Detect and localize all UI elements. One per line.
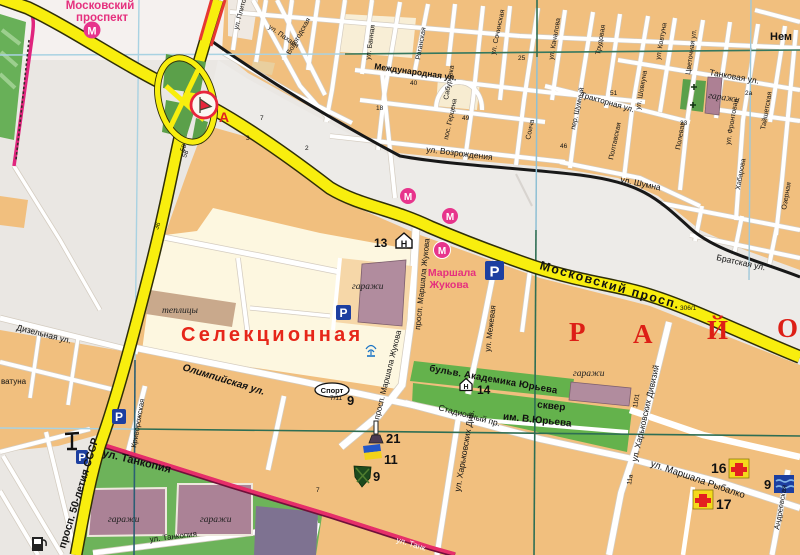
svg-text:25: 25 <box>518 55 526 62</box>
svg-text:2: 2 <box>305 145 309 152</box>
svg-text:7: 7 <box>316 487 320 494</box>
svg-text:Жукова: Жукова <box>428 279 468 291</box>
svg-text:51: 51 <box>610 90 618 97</box>
svg-text:Маршала: Маршала <box>428 267 476 279</box>
svg-text:Московский: Московский <box>66 0 135 12</box>
svg-text:46: 46 <box>560 143 568 150</box>
svg-text:Р: Р <box>569 317 586 347</box>
svg-text:Н: Н <box>463 384 468 391</box>
svg-text:16: 16 <box>711 460 727 476</box>
svg-text:М: М <box>438 246 446 257</box>
svg-text:Р: Р <box>339 306 347 320</box>
svg-text:18: 18 <box>376 105 384 112</box>
svg-text:17: 17 <box>716 496 732 512</box>
svg-text:Нем: Нем <box>770 31 792 43</box>
svg-text:гаражи: гаражи <box>352 282 384 292</box>
svg-text:проспект: проспект <box>76 12 128 24</box>
svg-text:гаражи: гаражи <box>200 515 232 525</box>
svg-text:Р: Р <box>489 264 499 281</box>
svg-text:7: 7 <box>260 115 264 122</box>
svg-text:Спорт: Спорт <box>321 386 344 395</box>
svg-text:9: 9 <box>764 477 771 492</box>
svg-text:О: О <box>777 313 798 343</box>
svg-text:Селекционная: Селекционная <box>181 324 364 346</box>
svg-text:11: 11 <box>384 452 398 467</box>
svg-text:9: 9 <box>347 393 354 408</box>
svg-text:Й: Й <box>707 315 728 345</box>
svg-text:М: М <box>404 192 412 203</box>
svg-text:теплицы: теплицы <box>162 306 198 316</box>
svg-text:40: 40 <box>410 80 418 87</box>
svg-text:гаражи: гаражи <box>108 515 140 525</box>
svg-text:7/11: 7/11 <box>330 395 343 402</box>
svg-text:2а: 2а <box>745 90 753 97</box>
svg-text:3: 3 <box>246 135 250 142</box>
svg-text:9: 9 <box>373 469 380 484</box>
svg-text:14: 14 <box>477 383 491 397</box>
svg-text:13: 13 <box>374 236 388 250</box>
svg-text:Н: Н <box>401 239 408 249</box>
svg-text:23: 23 <box>680 120 688 127</box>
svg-text:ватуна: ватуна <box>1 377 27 386</box>
svg-text:Р: Р <box>115 410 123 424</box>
svg-text:А: А <box>219 109 229 125</box>
svg-text:А: А <box>633 319 653 349</box>
svg-text:М: М <box>446 212 454 223</box>
svg-text:306/1: 306/1 <box>680 305 697 312</box>
svg-text:21: 21 <box>386 431 400 446</box>
svg-text:гаражи: гаражи <box>573 369 605 379</box>
svg-text:49: 49 <box>462 115 470 122</box>
svg-text:М: М <box>87 26 96 38</box>
